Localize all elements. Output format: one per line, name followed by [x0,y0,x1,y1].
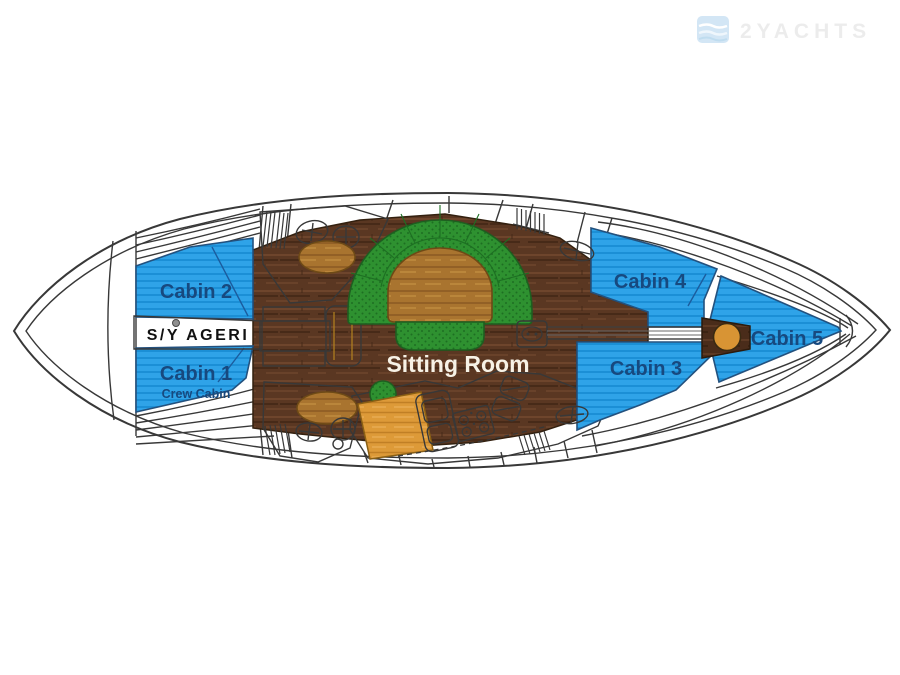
watermark: 2YACHTS [697,16,871,43]
cabin-3-label: Cabin 3 [610,358,682,380]
watermark-brand-text: 2YACHTS [740,20,871,43]
sitting-room-label: Sitting Room [386,351,529,377]
bow-fitting-dot [173,320,180,327]
crew-cabin-label: Crew Cabin [162,387,231,401]
watermark-logo-icon [697,16,729,43]
cabin-1-label: Cabin 1 [160,363,232,385]
cabin-2-label: Cabin 2 [160,281,232,303]
cabin-4-label: Cabin 4 [614,271,687,293]
wheel-icon [714,324,741,351]
yacht-floorplan-diagram: S/Y AGERI [0,0,900,675]
yacht-floorplan-page: S/Y AGERI [0,0,900,675]
galley-counter [358,392,433,459]
vanity-top [299,241,355,273]
cabin-5-label: Cabin 5 [751,328,823,350]
boat-name-label: S/Y AGERI [147,327,250,344]
sofa-bench [396,322,484,350]
